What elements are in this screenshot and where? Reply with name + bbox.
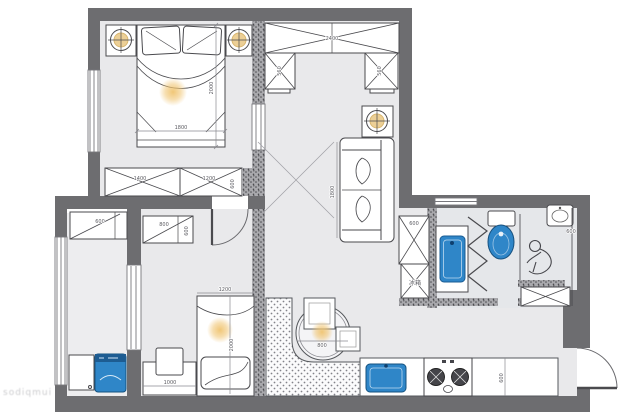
dim-master-bed-width: 1800 [175,125,188,131]
dim-hall-closet-width: 2400 [326,36,339,42]
label-fridge: 冰箱 [409,279,421,287]
dim-master-bed-length: 2000 [209,82,215,95]
dim-bed2-closet-width: 800 [159,222,169,228]
dim-bed2-closet-depth: 600 [184,226,190,236]
dim-sofa-length: 1800 [330,186,336,199]
dim-balcony-cabinet: 600 [95,219,105,225]
bath-cabinet [521,287,570,306]
nightstand-right [226,25,252,56]
dim-wardrobe-left: 1400 [134,176,147,182]
sofa [340,138,394,242]
dining-chair-right [336,327,360,351]
washing-machine [95,354,126,392]
dim-kitchen-counter-depth: 600 [499,373,505,383]
floor-plan-drawing: 1800 2000 1400 1200 600 2400 560 560 180… [0,0,640,416]
dim-dining-table: 800 [317,343,327,349]
balcony-cabinet-bottom [69,355,94,390]
nightstand-left [106,25,136,56]
watermark: sodiqmui [3,388,52,398]
bed2 [197,296,254,396]
floor-plan: 1800 2000 1400 1200 600 2400 560 560 180… [0,0,640,416]
dim-wardrobe-depth: 600 [230,179,236,189]
bathroom-window [435,198,477,205]
kitchen-sink [366,364,406,392]
dim-bed2-width: 1200 [219,287,232,293]
dim-fridge-width: 600 [409,221,419,227]
toilet [488,211,515,259]
dim-desk-width: 1000 [164,380,177,386]
stove [424,358,472,396]
corner-basin [547,205,573,226]
master-window [88,70,100,152]
lamp-table [362,106,393,137]
dim-shower-width: 600 [566,229,576,235]
entry-door [577,348,617,388]
dim-wardrobe-right: 1200 [203,176,216,182]
balcony-cabinet-top [70,212,127,239]
dim-bed2-length: 2000 [229,339,235,352]
dim-hall-closet-left-box: 560 [277,66,283,76]
vanity-basin [436,226,468,292]
balcony-door [127,265,141,350]
balcony-window [55,237,67,385]
master-sliding-door [252,104,265,150]
dim-hall-closet-right-box: 560 [377,66,383,76]
